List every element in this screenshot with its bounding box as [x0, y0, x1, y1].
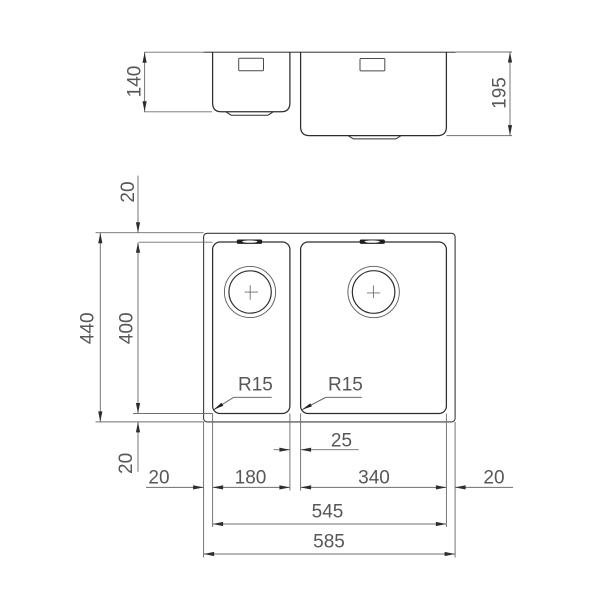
- svg-text:20: 20: [148, 467, 169, 488]
- svg-text:R15: R15: [238, 375, 273, 396]
- svg-text:180: 180: [235, 467, 267, 488]
- svg-text:195: 195: [490, 77, 511, 109]
- svg-text:400: 400: [117, 312, 138, 344]
- svg-text:25: 25: [331, 430, 352, 451]
- svg-text:20: 20: [116, 453, 137, 474]
- svg-text:20: 20: [118, 181, 139, 202]
- svg-text:20: 20: [483, 467, 504, 488]
- svg-text:140: 140: [124, 66, 145, 98]
- svg-text:440: 440: [78, 312, 99, 344]
- svg-text:340: 340: [358, 467, 390, 488]
- svg-text:R15: R15: [328, 375, 363, 396]
- svg-text:585: 585: [313, 532, 345, 553]
- svg-text:545: 545: [312, 502, 344, 523]
